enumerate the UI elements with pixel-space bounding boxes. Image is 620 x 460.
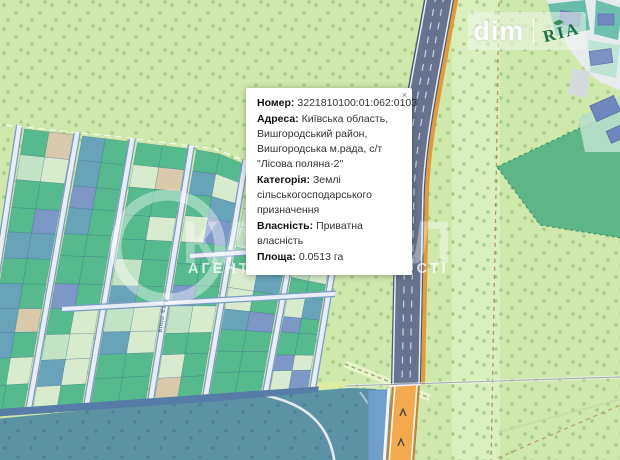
parcel[interactable]: [155, 167, 184, 191]
parcel[interactable]: [189, 171, 216, 196]
popup-label: Адреса:: [257, 113, 299, 125]
parcel[interactable]: [143, 240, 172, 260]
parcel[interactable]: [243, 331, 272, 352]
popup-value: 0.0513 га: [299, 251, 343, 263]
parcel-info-popup: × Номер:3221810100:01:062:0103 Адреса:Ки…: [246, 88, 412, 275]
parcel[interactable]: [46, 309, 75, 335]
parcel[interactable]: [129, 165, 158, 190]
popup-row-area: Площа:0.0513 га: [257, 250, 401, 265]
parcel[interactable]: [8, 207, 36, 233]
close-icon[interactable]: ×: [402, 89, 407, 101]
parcel[interactable]: [36, 182, 65, 211]
parcel[interactable]: [69, 186, 96, 209]
parcel[interactable]: [23, 259, 51, 285]
parcel[interactable]: [295, 333, 317, 355]
parcel[interactable]: [41, 334, 70, 360]
parcel[interactable]: [11, 332, 38, 358]
parcel[interactable]: [45, 132, 74, 160]
popup-row-number: Номер:3221810100:01:062:0103: [257, 96, 401, 111]
popup-label: Площа:: [257, 251, 296, 263]
parcel[interactable]: [217, 329, 246, 351]
parcel[interactable]: [281, 316, 302, 333]
parcel[interactable]: [73, 160, 101, 188]
parcel[interactable]: [181, 353, 208, 377]
logo-divider: [533, 18, 534, 44]
parcel[interactable]: [126, 331, 157, 354]
parcel[interactable]: [64, 208, 92, 235]
parcel[interactable]: [99, 332, 130, 355]
parcel[interactable]: [122, 353, 153, 378]
parcel[interactable]: [189, 306, 217, 333]
parcel[interactable]: [299, 318, 319, 334]
parcel[interactable]: [16, 155, 44, 182]
parcel[interactable]: [95, 354, 126, 379]
parcel[interactable]: [96, 163, 124, 190]
parcel[interactable]: [92, 188, 119, 211]
parcel[interactable]: [101, 139, 128, 165]
popup-label: Номер:: [257, 97, 294, 109]
popup-label: Власність:: [257, 220, 313, 232]
parcel[interactable]: [239, 351, 268, 372]
parcel[interactable]: [78, 136, 106, 163]
parcel[interactable]: [159, 146, 188, 170]
parcel[interactable]: [138, 260, 169, 287]
parcel[interactable]: [185, 332, 212, 354]
popup-value: 3221810100:01:062:0103: [297, 97, 417, 109]
parcel[interactable]: [273, 355, 294, 371]
parcel[interactable]: [193, 150, 220, 174]
parcel[interactable]: [221, 309, 250, 331]
popup-label: Категорія:: [257, 174, 310, 186]
parcel[interactable]: [302, 297, 323, 320]
popup-row-ownership: Власність:Приватна власність: [257, 219, 401, 249]
parcel[interactable]: [158, 354, 185, 378]
popup-row-category: Категорія:Землі сільськогосподарського п…: [257, 173, 401, 218]
parcel[interactable]: [79, 256, 108, 284]
parcel[interactable]: [146, 216, 176, 241]
parcel[interactable]: [0, 258, 27, 284]
parcel[interactable]: [37, 359, 66, 386]
parcel[interactable]: [133, 143, 162, 168]
parcel[interactable]: [60, 234, 88, 257]
parcel[interactable]: [162, 333, 189, 355]
parcel[interactable]: [214, 351, 243, 373]
popup-row-address: Адреса:Київська область, Вишгородський р…: [257, 112, 401, 172]
parcel[interactable]: [61, 358, 90, 385]
parcel[interactable]: [88, 209, 116, 236]
parcel[interactable]: [103, 307, 134, 332]
logo-dim-text: dim: [473, 16, 524, 47]
parcel[interactable]: [19, 284, 46, 309]
parcel[interactable]: [66, 334, 95, 360]
parcel[interactable]: [130, 307, 161, 332]
parcel[interactable]: [15, 309, 42, 333]
parcel[interactable]: [12, 180, 40, 209]
map-viewport: 4-та лінія 7-ма лінія 8-ма лінія КАПІТАЛ…: [0, 0, 620, 460]
parcel[interactable]: [70, 309, 98, 334]
parcel[interactable]: [27, 233, 55, 259]
dim-ria-logo: dim RIA: [468, 12, 586, 50]
parcel[interactable]: [32, 209, 60, 234]
parcel[interactable]: [292, 355, 313, 370]
parcel[interactable]: [20, 129, 49, 157]
parcel[interactable]: [84, 235, 111, 257]
parcel[interactable]: [40, 157, 69, 184]
parcel[interactable]: [4, 232, 32, 259]
parcel[interactable]: [51, 284, 79, 309]
parcel[interactable]: [6, 357, 33, 385]
parcel[interactable]: [246, 312, 275, 333]
